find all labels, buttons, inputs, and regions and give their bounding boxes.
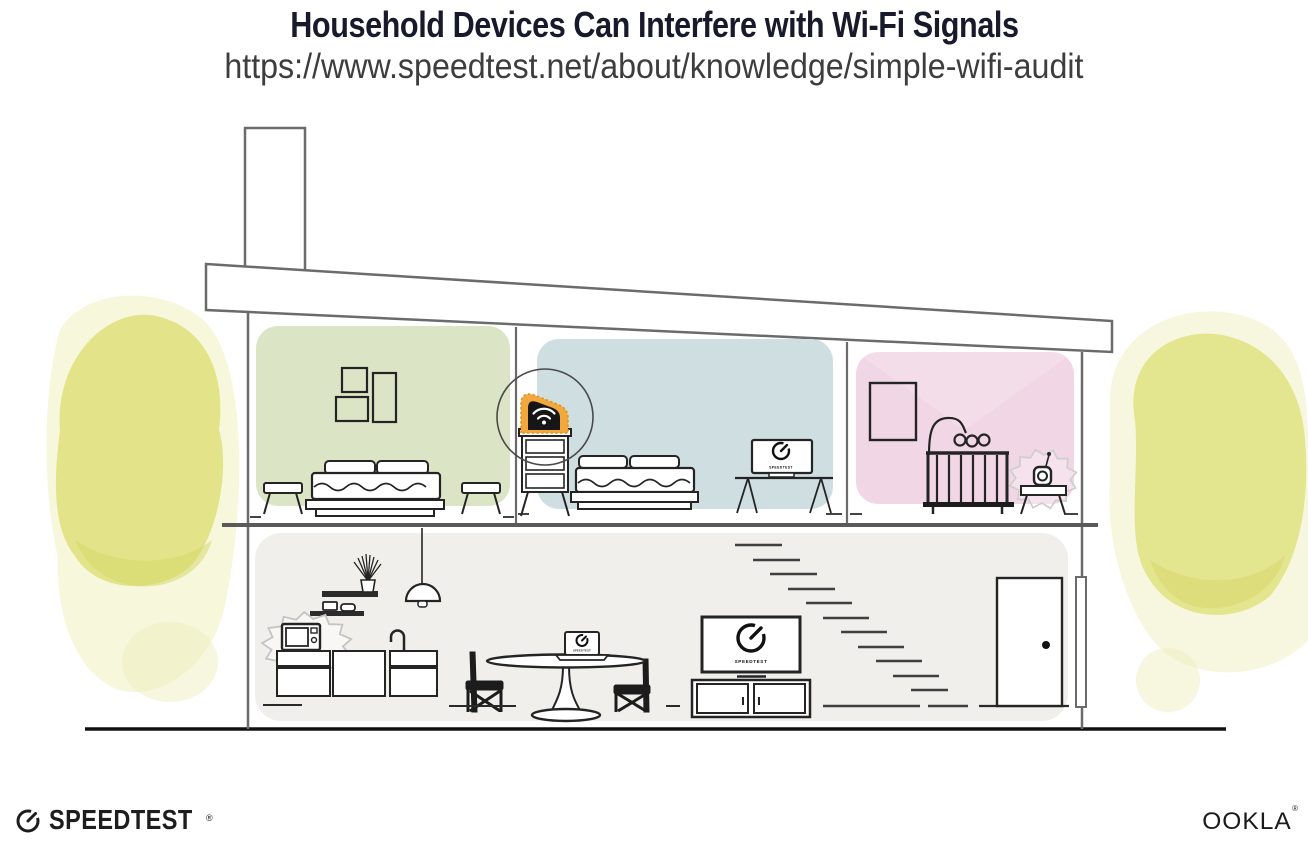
yellow-tree-right <box>1109 311 1308 712</box>
page-title: Household Devices Can Interfere with Wi-… <box>290 4 1018 45</box>
microwave <box>282 624 320 650</box>
kitchen-cabinets <box>277 651 437 696</box>
double-bed-left <box>306 461 444 516</box>
ookla-wordmark: OOKLA <box>1203 808 1292 836</box>
yellow-tree-left <box>46 296 239 702</box>
speedtest-wordmark: SPEEDTEST <box>49 804 193 836</box>
ookla-reg-mark: ® <box>1292 804 1298 813</box>
tv-console <box>692 680 810 717</box>
source-url: https://www.speedtest.net/about/knowledg… <box>224 47 1083 87</box>
ookla-logo: OOKLA® <box>1204 808 1298 836</box>
infographic-header: Household Devices Can Interfere with Wi-… <box>0 4 1308 88</box>
double-bed-middle <box>571 456 698 509</box>
drainpipe <box>1076 577 1086 707</box>
laptop-brand-text: SPEEDTEST <box>573 649 591 653</box>
speedtest-logo: SPEEDTEST ® <box>14 804 227 836</box>
chimney <box>245 128 305 290</box>
tv-brand-text: SPEEDTEST <box>735 659 768 664</box>
footer: SPEEDTEST ® OOKLA® <box>0 796 1308 840</box>
monitor-brand-text: SPEEDTEST <box>769 466 793 470</box>
speedtest-gauge-icon <box>14 806 42 834</box>
doorknob <box>1042 641 1050 649</box>
house-illustration: SPEEDTEST <box>0 0 1308 861</box>
tv-with-speedtest: SPEEDTEST <box>702 617 800 677</box>
speedtest-reg-mark: ® <box>206 813 213 823</box>
